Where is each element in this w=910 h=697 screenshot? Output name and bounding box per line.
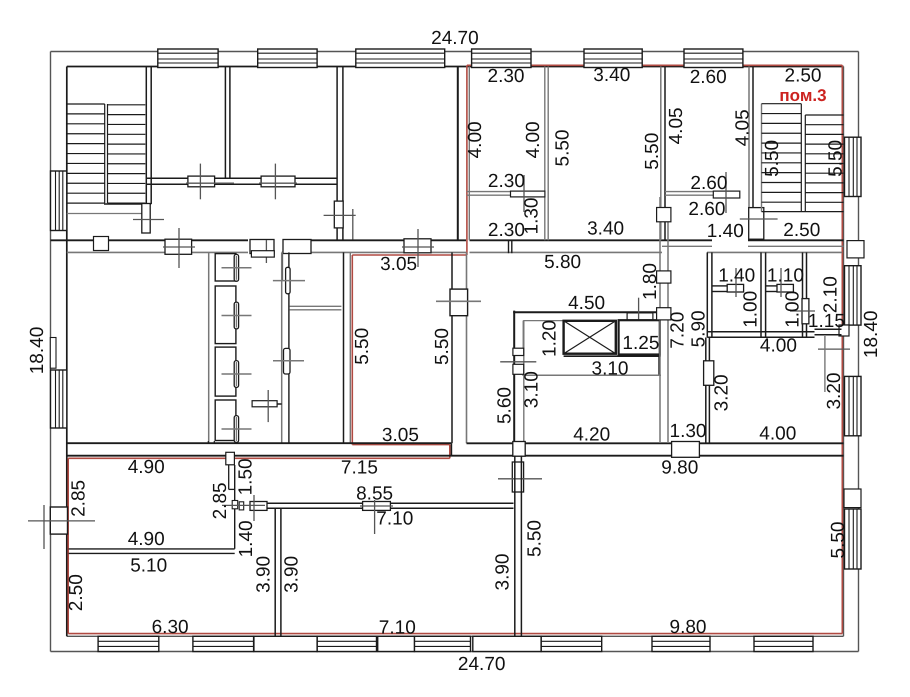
svg-text:4.05: 4.05 bbox=[733, 109, 754, 146]
svg-text:24.70: 24.70 bbox=[431, 28, 479, 49]
svg-text:4.00: 4.00 bbox=[760, 336, 797, 357]
svg-text:3.05: 3.05 bbox=[382, 425, 419, 446]
svg-text:3.40: 3.40 bbox=[593, 65, 630, 86]
svg-text:5.10: 5.10 bbox=[130, 556, 167, 577]
svg-text:5.50: 5.50 bbox=[432, 328, 453, 365]
svg-text:18.40: 18.40 bbox=[27, 327, 48, 375]
svg-text:2.50: 2.50 bbox=[66, 574, 87, 611]
svg-text:24.70: 24.70 bbox=[458, 654, 506, 675]
svg-text:3.10: 3.10 bbox=[592, 358, 629, 379]
svg-text:7.15: 7.15 bbox=[341, 458, 378, 479]
svg-text:3.05: 3.05 bbox=[380, 254, 417, 275]
svg-text:1.80: 1.80 bbox=[640, 263, 661, 300]
svg-text:2.50: 2.50 bbox=[785, 66, 822, 87]
svg-text:2.60: 2.60 bbox=[688, 199, 725, 220]
svg-text:3.10: 3.10 bbox=[522, 371, 543, 408]
svg-text:2.30: 2.30 bbox=[488, 220, 525, 241]
svg-text:2.50: 2.50 bbox=[783, 220, 820, 241]
svg-text:6.30: 6.30 bbox=[152, 617, 189, 638]
svg-text:1.30: 1.30 bbox=[670, 421, 707, 442]
svg-text:9.80: 9.80 bbox=[661, 458, 698, 479]
svg-text:1.25: 1.25 bbox=[622, 333, 659, 354]
svg-text:1.20: 1.20 bbox=[540, 320, 561, 357]
svg-text:5.50: 5.50 bbox=[642, 133, 663, 170]
svg-text:4.00: 4.00 bbox=[759, 424, 796, 445]
svg-text:1.10: 1.10 bbox=[767, 265, 804, 286]
svg-text:5.50: 5.50 bbox=[828, 522, 849, 559]
svg-text:2.60: 2.60 bbox=[690, 173, 727, 194]
svg-text:4.05: 4.05 bbox=[666, 107, 687, 144]
svg-text:5.50: 5.50 bbox=[553, 130, 574, 167]
svg-text:4.00: 4.00 bbox=[465, 121, 486, 158]
svg-text:7.10: 7.10 bbox=[379, 618, 416, 639]
svg-text:2.30: 2.30 bbox=[488, 66, 525, 87]
svg-text:5.60: 5.60 bbox=[495, 387, 516, 424]
svg-text:18.40: 18.40 bbox=[861, 311, 882, 359]
svg-text:4.50: 4.50 bbox=[568, 293, 605, 314]
svg-text:1.30: 1.30 bbox=[522, 198, 543, 235]
svg-text:4.90: 4.90 bbox=[128, 457, 165, 478]
svg-text:9.80: 9.80 bbox=[670, 617, 707, 638]
svg-text:5.90: 5.90 bbox=[688, 310, 709, 347]
svg-text:5.50: 5.50 bbox=[825, 140, 846, 177]
svg-text:пом.3: пом.3 bbox=[779, 86, 826, 105]
svg-text:4.20: 4.20 bbox=[573, 425, 610, 446]
svg-text:3.90: 3.90 bbox=[254, 556, 275, 593]
svg-text:8.55: 8.55 bbox=[356, 484, 393, 505]
svg-text:3.40: 3.40 bbox=[587, 219, 624, 240]
svg-text:3.20: 3.20 bbox=[824, 373, 845, 410]
svg-text:1.50: 1.50 bbox=[236, 458, 257, 495]
svg-text:5.50: 5.50 bbox=[352, 328, 373, 365]
svg-text:1.00: 1.00 bbox=[782, 291, 803, 328]
svg-text:2.30: 2.30 bbox=[488, 171, 525, 192]
svg-text:2.85: 2.85 bbox=[69, 480, 90, 517]
svg-text:1.40: 1.40 bbox=[718, 265, 755, 286]
svg-text:1.40: 1.40 bbox=[236, 520, 257, 557]
svg-text:5.50: 5.50 bbox=[762, 140, 783, 177]
svg-text:1.00: 1.00 bbox=[741, 291, 762, 328]
svg-text:7.20: 7.20 bbox=[667, 312, 688, 349]
svg-text:7.10: 7.10 bbox=[376, 509, 413, 530]
svg-text:4.90: 4.90 bbox=[128, 529, 165, 550]
svg-text:2.10: 2.10 bbox=[821, 276, 842, 313]
svg-text:5.50: 5.50 bbox=[525, 520, 546, 557]
svg-text:3.90: 3.90 bbox=[281, 556, 302, 593]
svg-text:1.40: 1.40 bbox=[707, 221, 744, 242]
svg-text:4.00: 4.00 bbox=[523, 121, 544, 158]
svg-text:3.20: 3.20 bbox=[712, 374, 733, 411]
svg-text:2.85: 2.85 bbox=[210, 482, 231, 519]
svg-text:3.90: 3.90 bbox=[493, 554, 514, 591]
svg-text:2.60: 2.60 bbox=[690, 67, 727, 88]
svg-text:5.80: 5.80 bbox=[544, 252, 581, 273]
